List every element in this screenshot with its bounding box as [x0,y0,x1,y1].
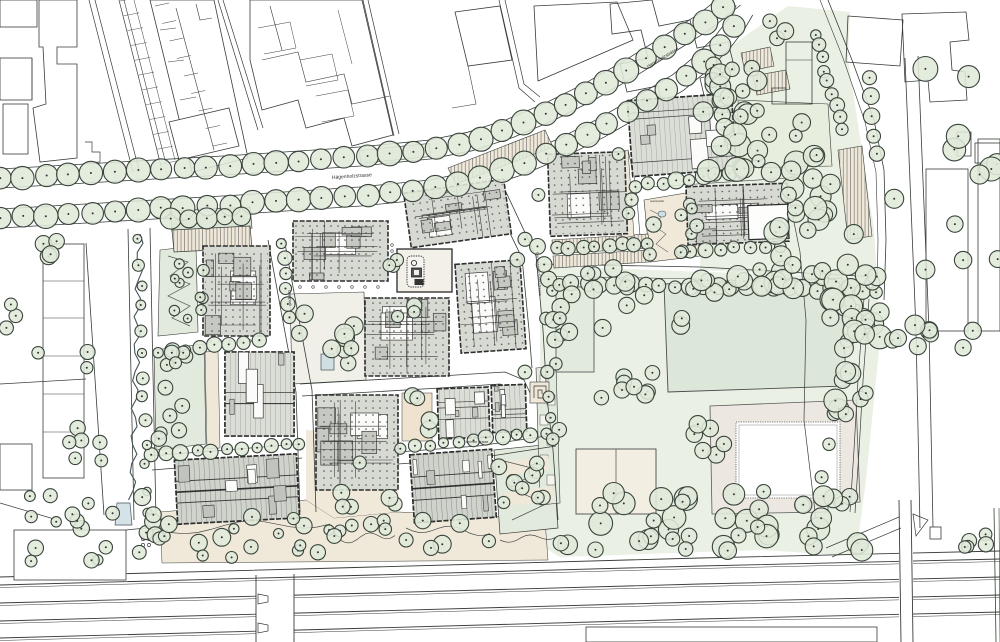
svg-text:wohnen strasse: wohnen strasse [466,440,489,444]
svg-text:quartierplatz: quartierplatz [650,199,665,203]
